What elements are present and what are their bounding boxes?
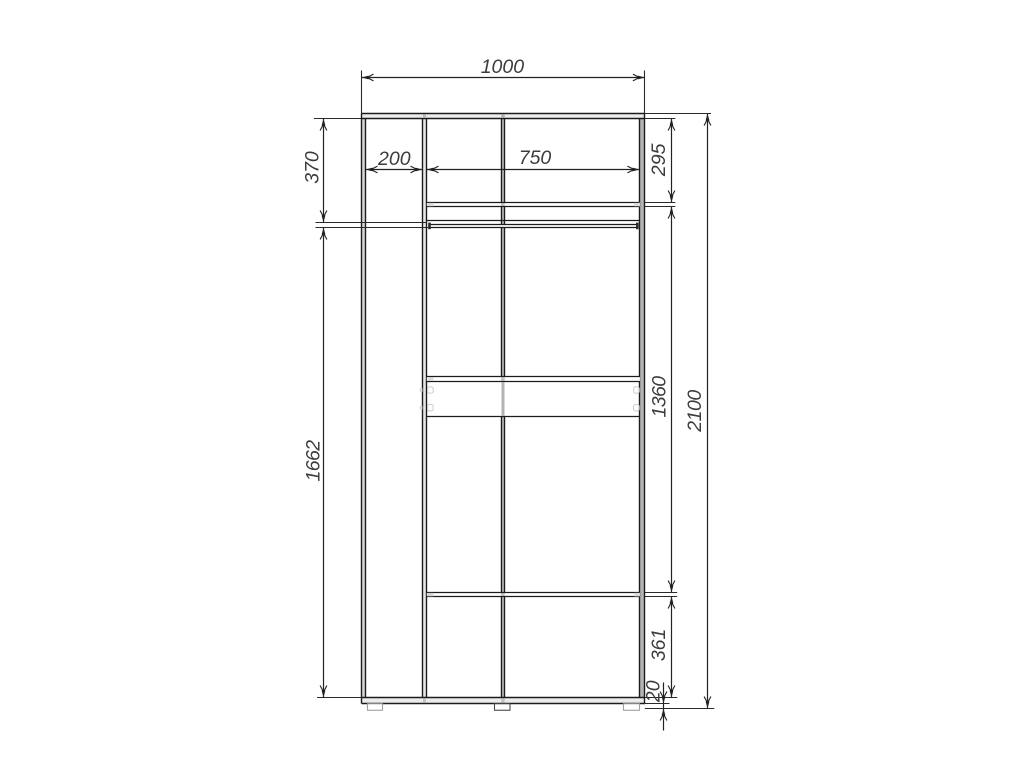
- svg-text:361: 361: [648, 629, 670, 662]
- svg-text:20: 20: [642, 680, 664, 703]
- svg-text:200: 200: [377, 148, 411, 170]
- svg-text:1360: 1360: [648, 376, 670, 418]
- svg-text:2100: 2100: [684, 390, 706, 433]
- svg-text:750: 750: [519, 147, 552, 169]
- svg-text:295: 295: [648, 143, 670, 177]
- svg-text:370: 370: [302, 151, 324, 184]
- svg-text:1000: 1000: [481, 56, 525, 78]
- svg-text:1662: 1662: [302, 440, 324, 482]
